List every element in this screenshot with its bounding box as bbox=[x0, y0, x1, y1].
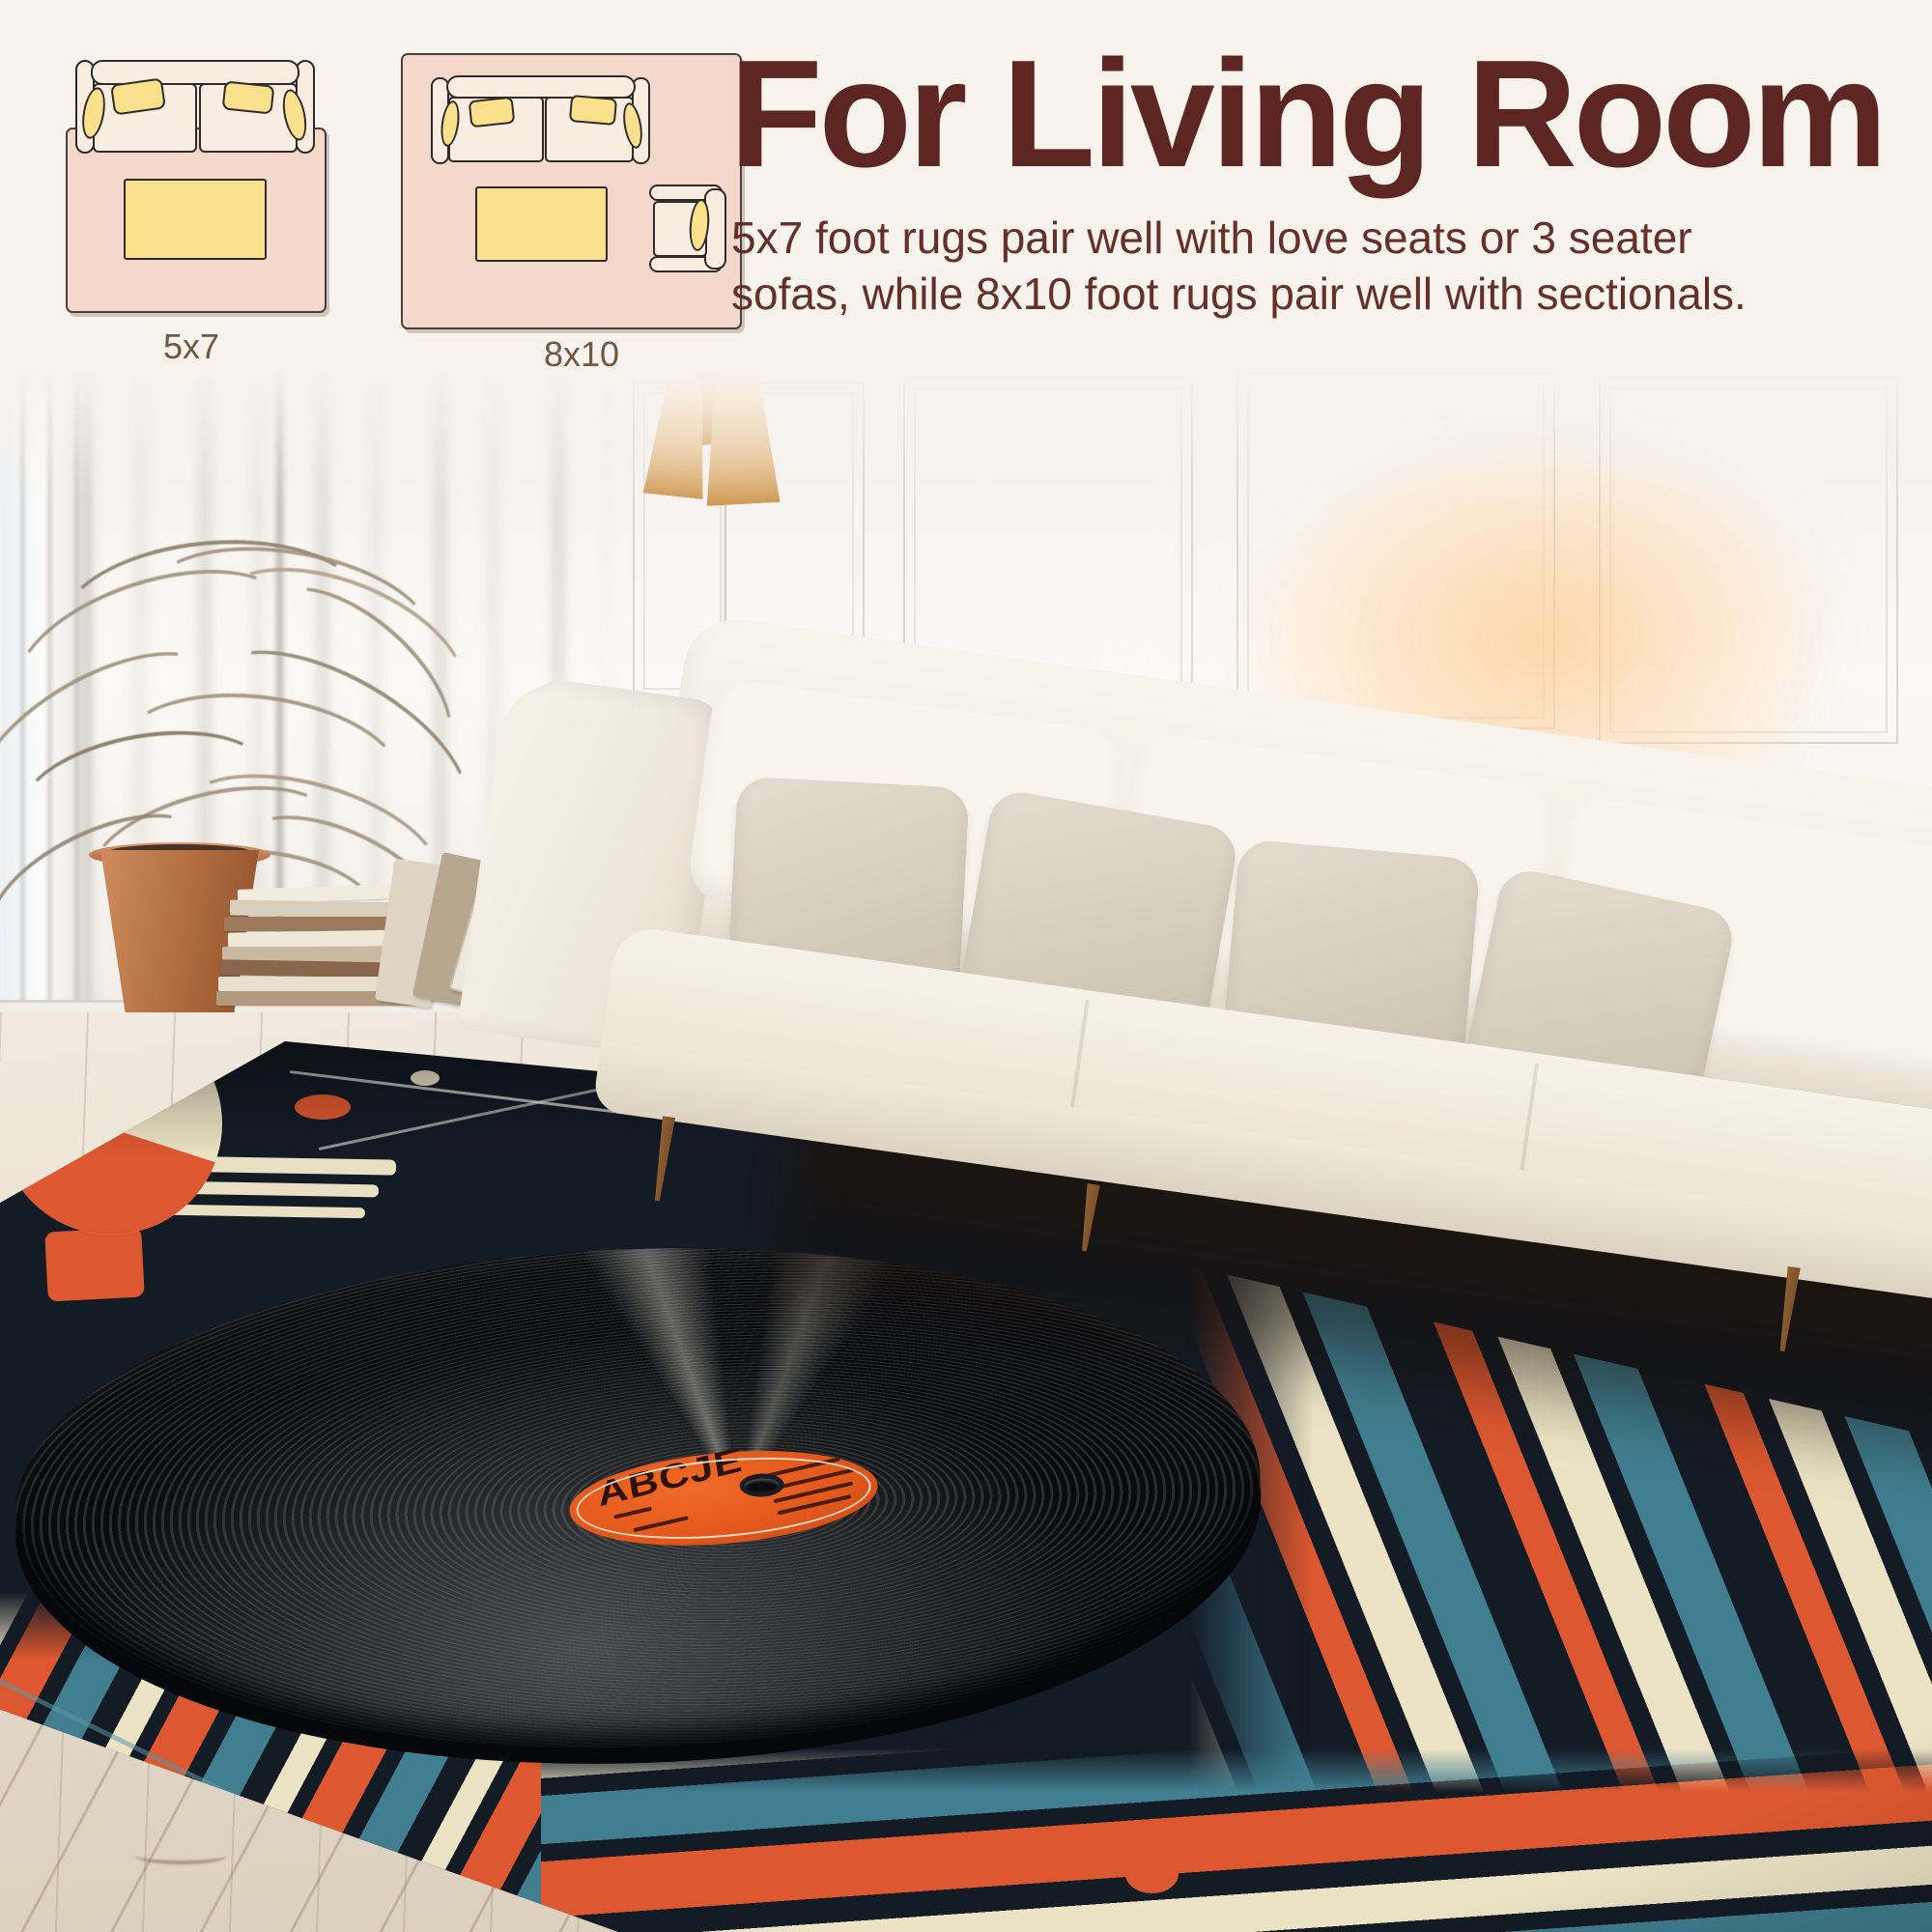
diagram-pillow bbox=[222, 80, 275, 114]
rug-teal-dot bbox=[430, 1362, 469, 1378]
description-line-2: sofas, while 8x10 foot rugs pair well wi… bbox=[731, 267, 1932, 323]
rug-cream-bar bbox=[108, 1180, 379, 1198]
diagram-coffee-table bbox=[124, 179, 267, 260]
rug-cream-dot bbox=[411, 1070, 440, 1086]
label-fine-print bbox=[766, 1467, 854, 1492]
rug-teal-planet-large bbox=[159, 1355, 348, 1408]
rug-cream-bar bbox=[116, 1204, 365, 1219]
diagram-pillow bbox=[469, 97, 516, 128]
rug-teal-planet-large-center bbox=[206, 1369, 300, 1396]
rug-orange-dot bbox=[295, 1094, 351, 1120]
diagram-coffee-table bbox=[475, 186, 608, 262]
label-fine-print bbox=[633, 1516, 688, 1532]
label-fine-print bbox=[613, 1506, 652, 1519]
banner-photo-fade bbox=[0, 348, 1932, 502]
diagram-sofa-back bbox=[91, 60, 299, 85]
rug-planet-core-dot bbox=[243, 1376, 267, 1387]
sofa-leg bbox=[642, 1115, 683, 1203]
wood-knot bbox=[135, 1847, 227, 1864]
rug-cream-bar bbox=[101, 1154, 396, 1175]
description-line-1: 5x7 foot rugs pair well with love seats … bbox=[731, 211, 1932, 267]
description-text: 5x7 foot rugs pair well with love seats … bbox=[731, 211, 1932, 323]
sofa-leg bbox=[1070, 1182, 1108, 1253]
record-center-label: ABCJE bbox=[566, 1439, 882, 1557]
page-title: For Living Room bbox=[729, 27, 1884, 202]
rug-stripe-pattern-bottom bbox=[415, 1748, 1932, 1932]
diagram-pillow bbox=[569, 95, 617, 126]
rug-orange-square bbox=[44, 1227, 145, 1301]
label-fine-print bbox=[759, 1457, 841, 1479]
size-label-8x10: 8x10 bbox=[509, 334, 654, 375]
size-label-5x7: 5x7 bbox=[114, 327, 269, 367]
rug-product-infographic: ABCJE bbox=[0, 0, 1932, 1932]
diagram-sofa-back bbox=[446, 75, 636, 99]
label-fine-print bbox=[778, 1494, 852, 1515]
record-shadow bbox=[29, 1302, 1314, 1824]
header-banner: 5x7 8x10 For Living Room 5x7 foot rugs p… bbox=[0, 0, 1932, 367]
rug-orange-dot bbox=[1125, 1855, 1179, 1893]
label-fine-print bbox=[774, 1481, 854, 1503]
record-brand-text: ABCJE bbox=[594, 1440, 745, 1515]
record-spindle-hole bbox=[739, 1473, 784, 1498]
rug-orange-dot bbox=[309, 1346, 369, 1367]
